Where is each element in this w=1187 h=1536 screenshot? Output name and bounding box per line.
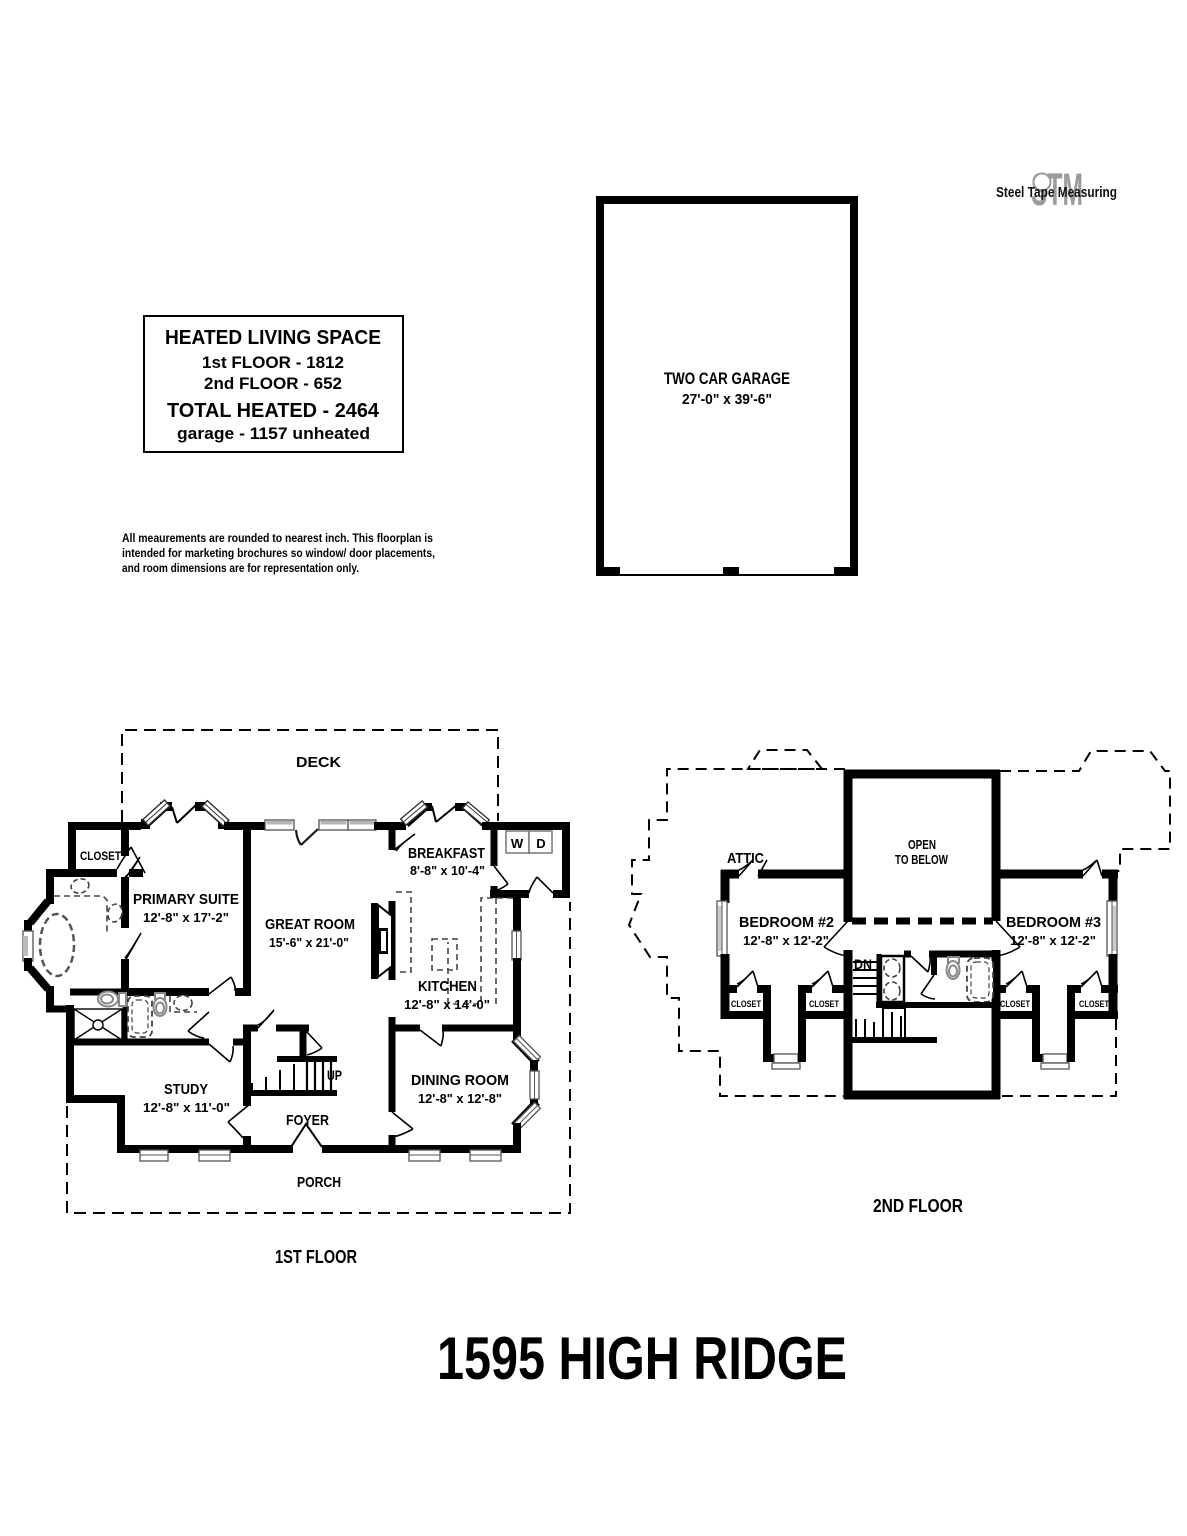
svg-text:W: W <box>511 836 524 851</box>
svg-text:UP: UP <box>327 1067 342 1083</box>
svg-text:12'-8" x 12'-2": 12'-8" x 12'-2" <box>743 933 829 948</box>
svg-text:BREAKFAST: BREAKFAST <box>408 845 485 862</box>
svg-text:27'-0" x 39'-6": 27'-0" x 39'-6" <box>682 391 772 408</box>
svg-text:12'-8" x 12'-8": 12'-8" x 12'-8" <box>418 1091 502 1106</box>
svg-text:CLOSET: CLOSET <box>731 999 761 1010</box>
svg-text:HEATED LIVING SPACE: HEATED LIVING SPACE <box>165 327 381 349</box>
svg-text:DECK: DECK <box>296 754 341 771</box>
svg-text:BEDROOM #3: BEDROOM #3 <box>1006 914 1101 931</box>
svg-text:FOYER: FOYER <box>286 1112 329 1129</box>
svg-text:TOTAL HEATED - 2464: TOTAL HEATED - 2464 <box>167 400 380 422</box>
svg-text:Steel Tape Measuring: Steel Tape Measuring <box>996 184 1117 201</box>
svg-text:D: D <box>536 836 545 851</box>
svg-text:PORCH: PORCH <box>297 1174 341 1191</box>
svg-text:All meaurements are rounded to: All meaurements are rounded to nearest i… <box>122 531 433 545</box>
svg-text:12'-8" x 11'-0": 12'-8" x 11'-0" <box>143 1100 230 1115</box>
svg-text:PRIMARY SUITE: PRIMARY SUITE <box>133 891 239 908</box>
svg-text:1st FLOOR - 1812: 1st FLOOR - 1812 <box>202 354 344 372</box>
svg-text:CLOSET: CLOSET <box>1079 999 1109 1010</box>
svg-text:2nd FLOOR - 652: 2nd FLOOR - 652 <box>204 375 342 393</box>
svg-text:garage - 1157 unheated: garage - 1157 unheated <box>177 425 370 443</box>
svg-text:12'-8" x 12'-2": 12'-8" x 12'-2" <box>1010 933 1096 948</box>
svg-text:TO BELOW: TO BELOW <box>895 853 948 867</box>
svg-text:BEDROOM #2: BEDROOM #2 <box>739 914 834 931</box>
svg-text:and room dimensions are for re: and room dimensions are for representati… <box>122 561 359 575</box>
svg-text:1595 HIGH RIDGE: 1595 HIGH RIDGE <box>437 1325 847 1392</box>
svg-text:DINING ROOM: DINING ROOM <box>411 1072 509 1089</box>
svg-text:STUDY: STUDY <box>164 1081 208 1098</box>
svg-text:GREAT ROOM: GREAT ROOM <box>265 916 355 933</box>
svg-text:1ST FLOOR: 1ST FLOOR <box>275 1247 357 1267</box>
svg-text:CLOSET: CLOSET <box>809 999 839 1010</box>
svg-text:intended for marketing brochur: intended for marketing brochures so wind… <box>122 546 435 560</box>
svg-text:CLOSET: CLOSET <box>1000 999 1030 1010</box>
svg-text:TWO CAR GARAGE: TWO CAR GARAGE <box>664 370 790 388</box>
svg-text:8'-8" x 10'-4": 8'-8" x 10'-4" <box>410 863 485 878</box>
svg-text:OPEN: OPEN <box>908 838 936 852</box>
svg-text:12'-8" x 14'-0": 12'-8" x 14'-0" <box>404 997 490 1012</box>
svg-text:CLOSET: CLOSET <box>80 849 122 863</box>
svg-text:DN: DN <box>854 956 872 972</box>
svg-text:ATTIC: ATTIC <box>727 850 764 867</box>
svg-text:KITCHEN: KITCHEN <box>418 978 477 995</box>
svg-text:2ND FLOOR: 2ND FLOOR <box>873 1196 963 1216</box>
svg-text:12'-8" x 17'-2": 12'-8" x 17'-2" <box>143 910 229 925</box>
svg-text:15'-6" x 21'-0": 15'-6" x 21'-0" <box>269 935 349 950</box>
